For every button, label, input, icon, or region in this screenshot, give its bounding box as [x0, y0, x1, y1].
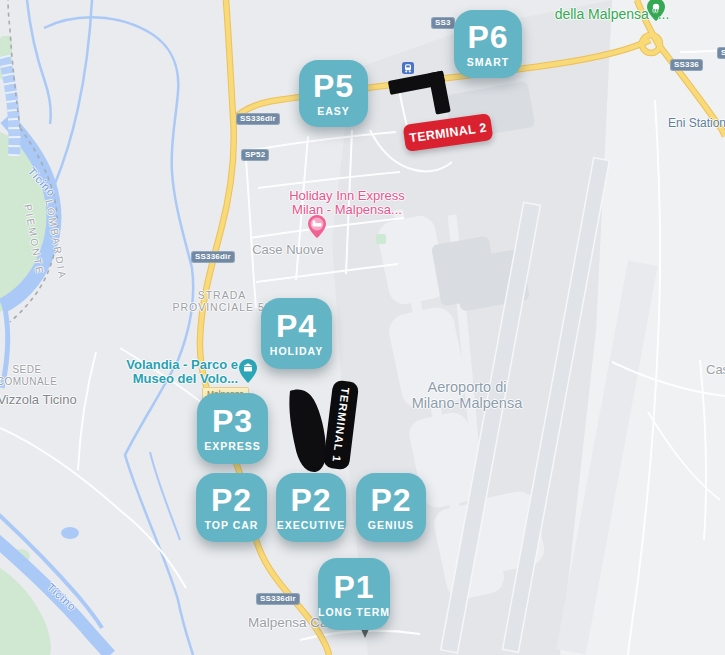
parking-marker-p2-executive[interactable]: P2 EXECUTIVE	[276, 473, 346, 542]
road-shield-ss3-top: SS3	[431, 17, 455, 29]
holiday-inn-pin[interactable]	[307, 214, 327, 240]
volandia-pin[interactable]	[238, 358, 258, 385]
road-shield-ss336-ne: SS336	[670, 59, 703, 71]
parking-marker-p5-easy[interactable]: P5 EASY	[299, 60, 368, 127]
parking-marker-p3-express[interactable]: P3 EXPRESS	[197, 393, 268, 464]
parking-marker-p2-genius[interactable]: P2 GENIUS	[356, 473, 426, 542]
town-label-malpensa-cargo: Malpensa Ca	[248, 615, 328, 630]
poi-label-eni-station: Eni Station	[668, 116, 725, 130]
road-label-strada-provinciale: STRADA PROVINCIALE 52	[172, 290, 271, 313]
town-label-vizzola-ticino: Vizzola Ticino	[0, 392, 77, 407]
road-shield-sp52: SP52	[241, 149, 269, 161]
train-station-icon[interactable]	[402, 62, 414, 74]
town-label-case-nuove: Case Nuove	[252, 242, 324, 257]
road-shield-ss336dir-w: SS336dir	[191, 251, 235, 263]
parking-marker-p6-smart[interactable]: P6 SMART	[454, 10, 522, 78]
poi-label-volandia: Volandia - Parco e Museo del Volo...	[126, 358, 238, 386]
road-shield-ss336dir-nw: SS336dir	[236, 113, 280, 125]
parking-marker-p2-top-car[interactable]: P2 TOP CAR	[196, 473, 267, 542]
poi-label-holiday-inn: Holiday Inn Express Milan - Malpensa...	[289, 189, 405, 217]
road-shield-ss336dir-s: SS336dir	[256, 593, 300, 605]
road-shield-s-edge: S	[717, 47, 725, 59]
town-label-cut-right: Cas	[706, 362, 725, 377]
map-canvas[interactable]: della Malpensa "... Eni Station Holiday …	[0, 0, 725, 655]
parking-marker-p1-long-term[interactable]: P1 LONG TERM	[318, 558, 390, 630]
parking-marker-p4-holiday[interactable]: P4 HOLIDAY	[261, 298, 332, 369]
airport-name-label: Aeroporto di Milano-Malpensa	[412, 380, 522, 411]
label-sede-comunale: SEDE COMUNALE	[0, 364, 57, 387]
poi-label-della-malpensa: della Malpensa "...	[555, 6, 670, 22]
